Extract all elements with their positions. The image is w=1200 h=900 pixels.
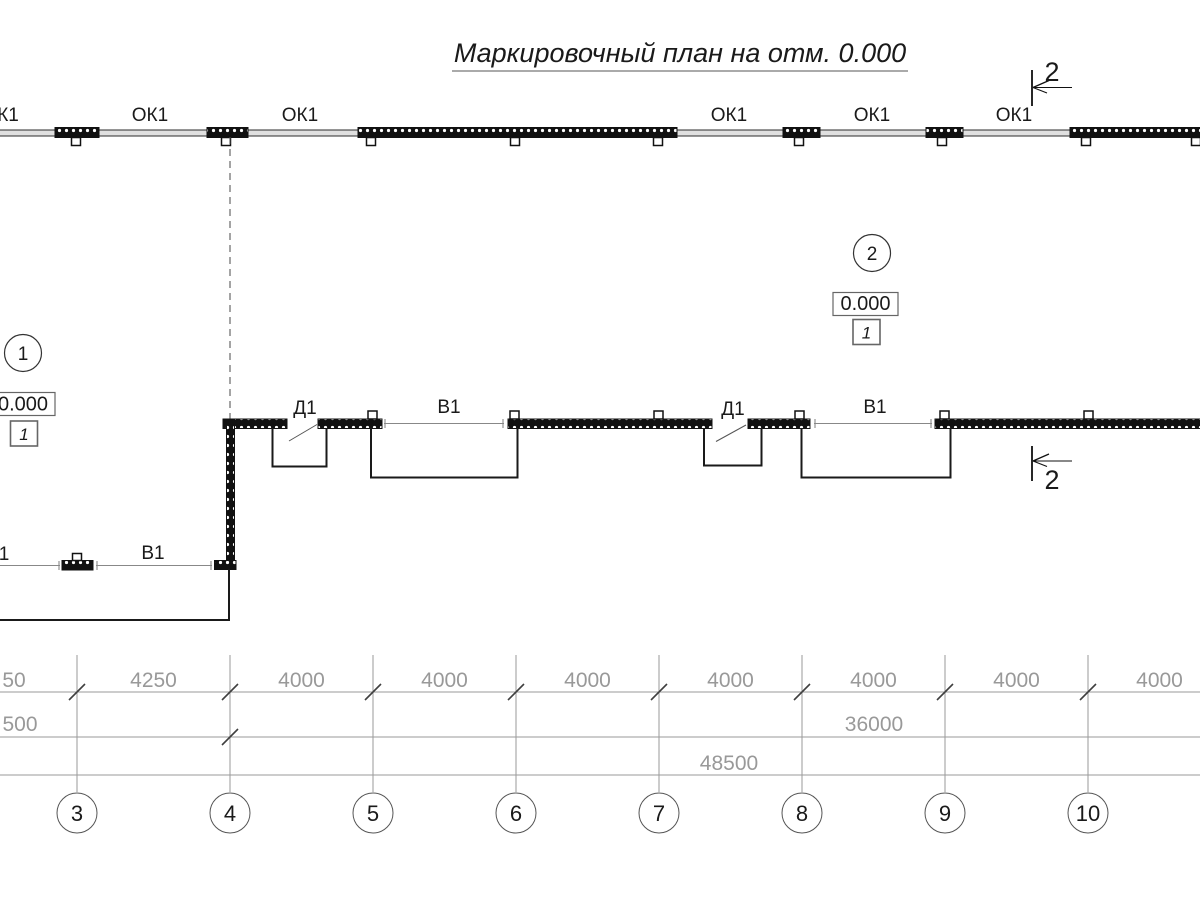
node-marker-2: 2 0.000 1 <box>833 235 898 345</box>
door-swing <box>716 425 746 442</box>
node-number: 2 <box>867 244 878 265</box>
recess-outlines <box>273 428 951 478</box>
axis-number: 7 <box>653 801 665 826</box>
axis-number: 4 <box>224 801 236 826</box>
dim-text: 36000 <box>845 713 903 736</box>
opening-label: 1 <box>0 544 9 565</box>
node-number: 1 <box>18 344 29 365</box>
window-tabs-top-wall <box>72 138 1200 146</box>
elevation-value: 0.000 <box>840 293 890 315</box>
window-block <box>55 128 99 138</box>
wall-segment <box>318 419 382 429</box>
dim-text: 4000 <box>707 669 754 692</box>
wall-segment <box>748 419 810 429</box>
axis-number: 10 <box>1076 801 1100 826</box>
dim-text: 4000 <box>278 669 325 692</box>
window-block <box>926 128 963 138</box>
dimension-ticks <box>69 684 1096 745</box>
opening-label: В1 <box>437 397 460 418</box>
page-title: Маркировочный план на отм. 0.000 <box>454 38 906 68</box>
window-label: ОК1 <box>132 105 168 126</box>
axis-number: 5 <box>367 801 379 826</box>
dim-text: 4000 <box>993 669 1040 692</box>
window-block <box>783 128 820 138</box>
frame-number: 1 <box>19 425 28 444</box>
window-tab <box>73 554 82 561</box>
corner-wall <box>215 561 237 570</box>
node-marker-1: 1 0.000 1 <box>0 335 55 447</box>
opening-label: В1 <box>863 397 886 418</box>
dim-text: 4000 <box>850 669 897 692</box>
lower-wall <box>0 554 229 621</box>
dim-text: 4000 <box>564 669 611 692</box>
window-label: ОК1 <box>282 105 318 126</box>
door-label: Д1 <box>293 398 316 419</box>
window-block <box>207 128 248 138</box>
elevation-value: 0.000 <box>0 394 48 416</box>
dim-text: 4000 <box>1136 669 1183 692</box>
door-swing <box>289 425 317 442</box>
plan-canvas: Маркировочный план на отм. 0.000 К1 ОК1 … <box>0 0 1200 900</box>
axis-number: 8 <box>796 801 808 826</box>
frame-number: 1 <box>862 324 871 343</box>
window-label: К1 <box>0 105 19 126</box>
dim-text: 50 <box>2 669 25 692</box>
door-label: Д1 <box>721 399 744 420</box>
axis-bubbles: 3 4 5 6 7 8 9 10 <box>57 793 1108 833</box>
dim-text: 500 <box>2 713 37 736</box>
building-outline <box>0 570 229 621</box>
dim-text: 4000 <box>421 669 468 692</box>
axis-number: 9 <box>939 801 951 826</box>
dim-text: 4250 <box>130 669 177 692</box>
window-label: ОК1 <box>996 105 1032 126</box>
window-block <box>1070 128 1200 138</box>
wall-segment <box>508 419 712 429</box>
dim-text: 48500 <box>700 752 758 775</box>
axis-number: 3 <box>71 801 83 826</box>
section-label: 2 <box>1044 57 1059 87</box>
window-block <box>358 128 677 138</box>
drawing-sheet: Маркировочный план на отм. 0.000 К1 ОК1 … <box>0 0 1200 900</box>
window-block <box>62 561 93 571</box>
wall-segment <box>935 419 1200 429</box>
opening-label: В1 <box>141 543 164 564</box>
section-label: 2 <box>1044 465 1059 495</box>
window-label: ОК1 <box>711 105 747 126</box>
axis-number: 6 <box>510 801 522 826</box>
window-label: ОК1 <box>854 105 890 126</box>
top-wall <box>0 128 1200 146</box>
vertical-wall <box>227 420 235 568</box>
